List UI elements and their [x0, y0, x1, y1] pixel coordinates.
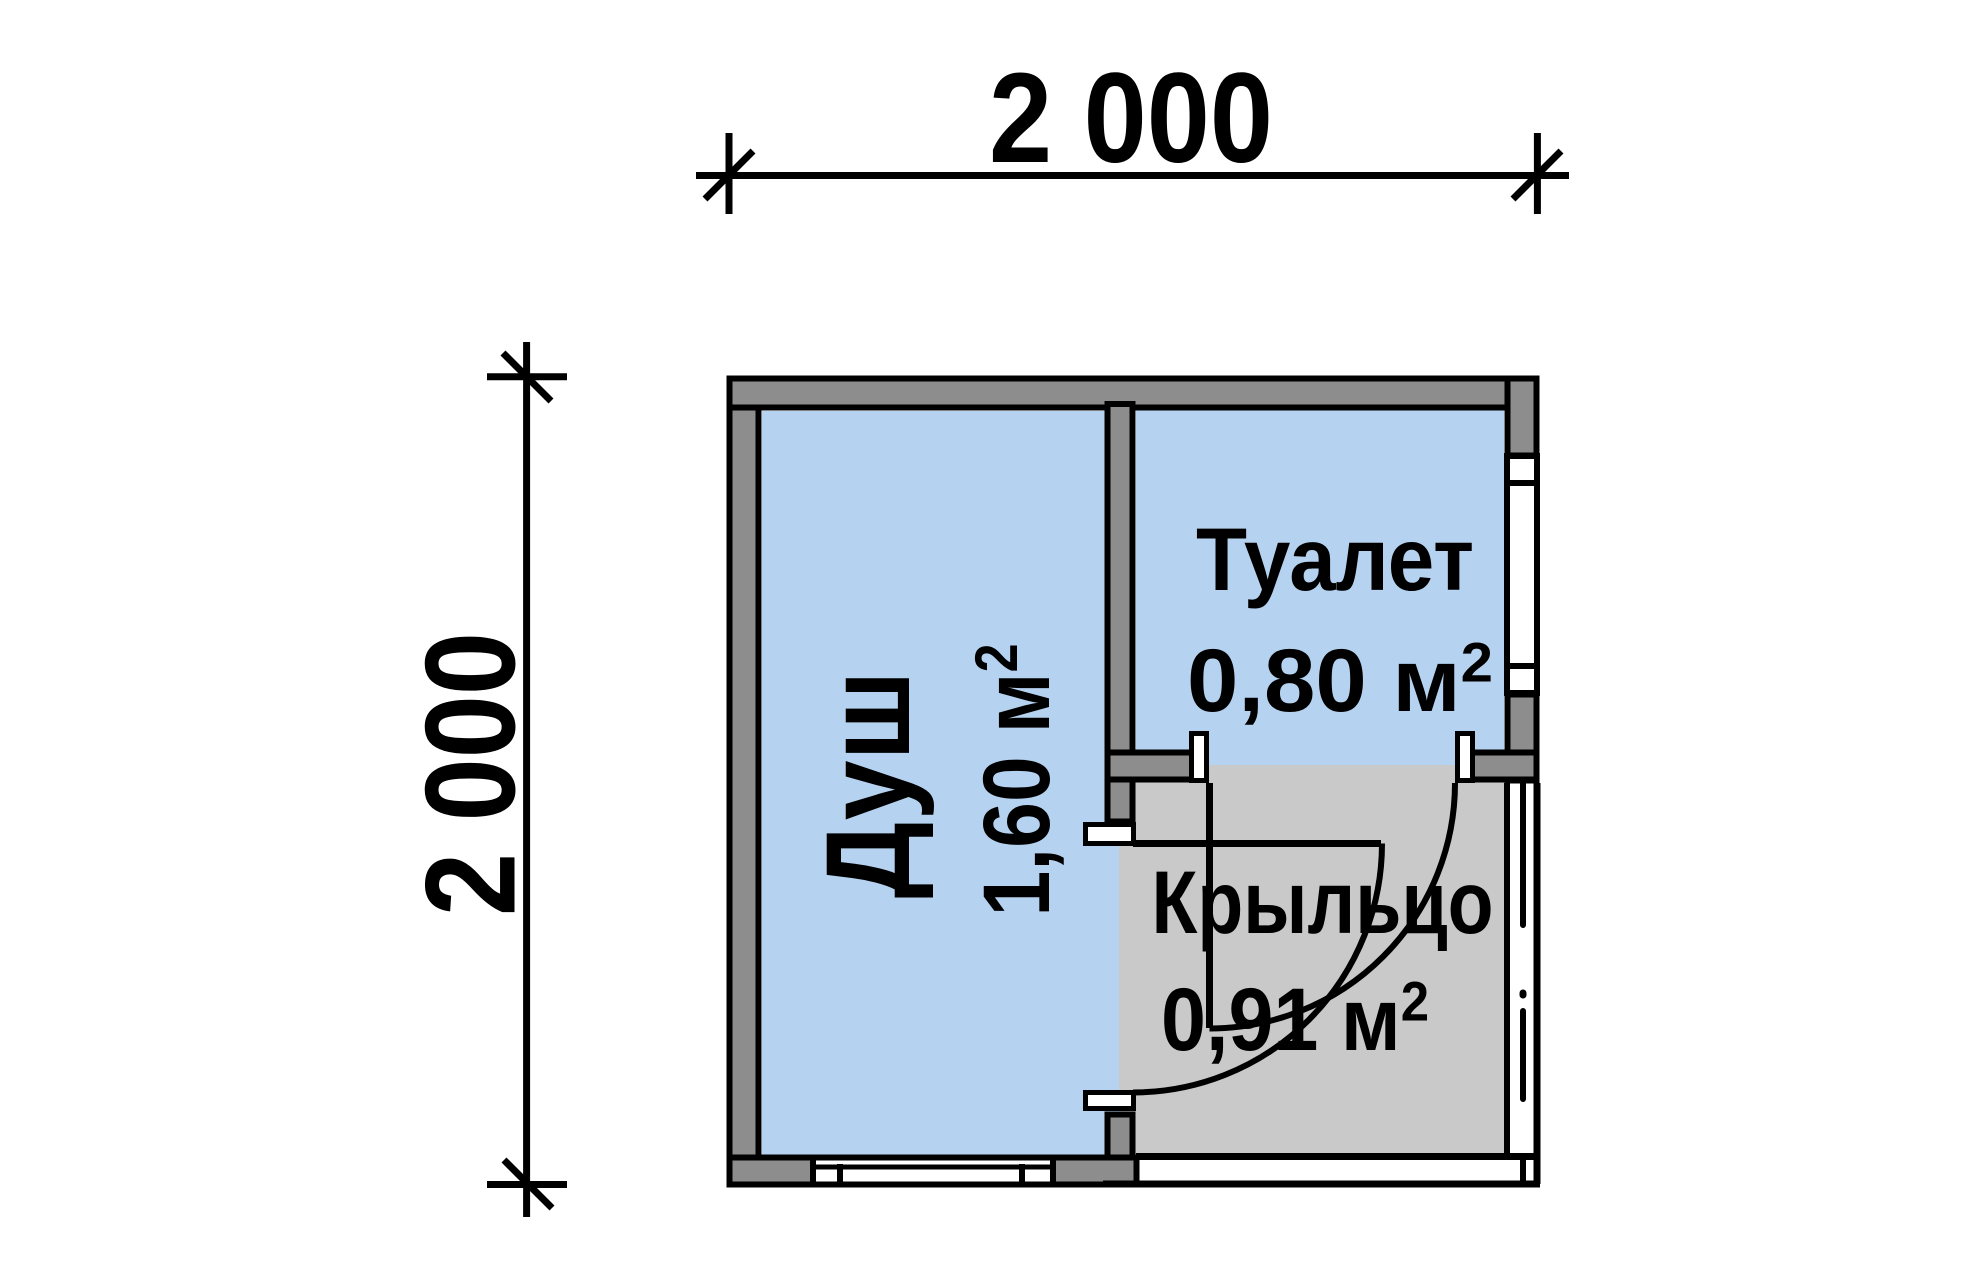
- svg-text:Душ: Душ: [801, 671, 935, 899]
- svg-text:Туалет: Туалет: [1196, 509, 1474, 609]
- svg-text:2 000: 2 000: [989, 47, 1273, 190]
- svg-text:1,60 м2: 1,60 м2: [963, 644, 1070, 917]
- svg-text:0,80 м2: 0,80 м2: [1187, 630, 1493, 730]
- svg-text:2 000: 2 000: [400, 632, 543, 916]
- svg-text:0,91 м2: 0,91 м2: [1161, 969, 1429, 1069]
- svg-text:Крыльцо: Крыльцо: [1152, 852, 1494, 952]
